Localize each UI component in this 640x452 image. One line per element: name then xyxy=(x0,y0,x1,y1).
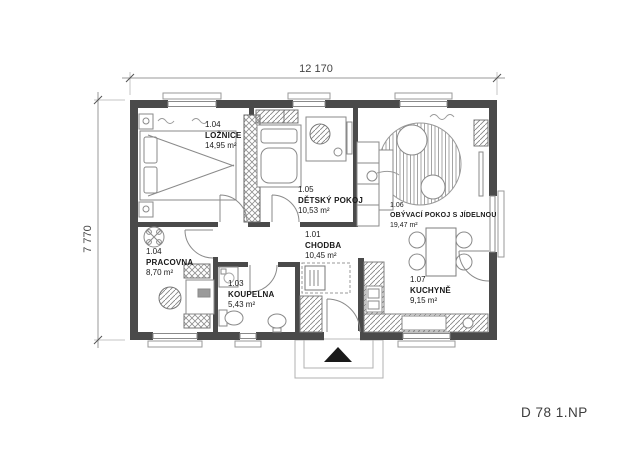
room-label-chodba: 1.01 CHODBA 10,45 m² xyxy=(305,230,341,262)
room-area: 10,45 m² xyxy=(305,251,341,262)
room-name: OBÝVACÍ POKOJ S JÍDELNOU xyxy=(390,211,497,221)
room-name: KOUPELNA xyxy=(228,290,275,301)
room-name: CHODBA xyxy=(305,241,341,252)
room-area: 8,70 m² xyxy=(146,268,193,279)
room-number: 1.01 xyxy=(305,230,341,241)
dimension-width-label: 12 170 xyxy=(288,63,344,75)
entrance-porch xyxy=(295,340,383,378)
room-name: KUCHYNĚ xyxy=(410,286,451,297)
room-area: 14,95 m² xyxy=(205,141,242,152)
room-label-pracovna: 1.04 PRACOVNA 8,70 m² xyxy=(146,247,193,279)
sheet-title: D 78 1.NP xyxy=(521,405,588,420)
hall-fixtures xyxy=(300,263,350,332)
room-label-kuchyne: 1.07 KUCHYNĚ 9,15 m² xyxy=(410,275,451,307)
entrance-arrow-icon xyxy=(324,347,352,362)
room-area: 19,47 m² xyxy=(390,221,497,231)
dimension-height-label: 7 770 xyxy=(82,213,94,265)
room-number: 1.04 xyxy=(146,247,193,258)
room-label-loznice: 1.04 LOŽNICE 14,95 m² xyxy=(205,120,242,152)
room-label-detsky-pokoj: 1.05 DĚTSKÝ POKOJ 10,53 m² xyxy=(298,185,363,217)
room-area: 5,43 m² xyxy=(228,300,275,311)
entrance-door xyxy=(327,299,360,332)
room-number: 1.04 xyxy=(205,120,242,131)
ceiling-fan-icon xyxy=(144,227,164,247)
room-name: LOŽNICE xyxy=(205,131,242,142)
room-name: DĚTSKÝ POKOJ xyxy=(298,196,363,207)
boiler xyxy=(305,266,325,290)
room-label-obyvaci-pokoj: 1.06 OBÝVACÍ POKOJ S JÍDELNOU 19,47 m² xyxy=(390,201,497,231)
room-area: 10,53 m² xyxy=(298,206,363,217)
room-number: 1.06 xyxy=(390,201,497,211)
room-label-koupelna: 1.03 KOUPELNA 5,43 m² xyxy=(228,279,275,311)
toilet xyxy=(219,310,243,326)
room-number: 1.07 xyxy=(410,275,451,286)
room-name: PRACOVNA xyxy=(146,258,193,269)
kids-room-door xyxy=(272,195,299,222)
room-number: 1.03 xyxy=(228,279,275,290)
hall-closet xyxy=(300,296,322,332)
room-number: 1.05 xyxy=(298,185,363,196)
room-area: 9,15 m² xyxy=(410,296,451,307)
kids-room-furniture xyxy=(256,110,352,187)
sink xyxy=(268,314,286,332)
floorplan-canvas: 1.04 LOŽNICE 14,95 m² 1.05 DĚTSKÝ POKOJ … xyxy=(0,0,640,452)
